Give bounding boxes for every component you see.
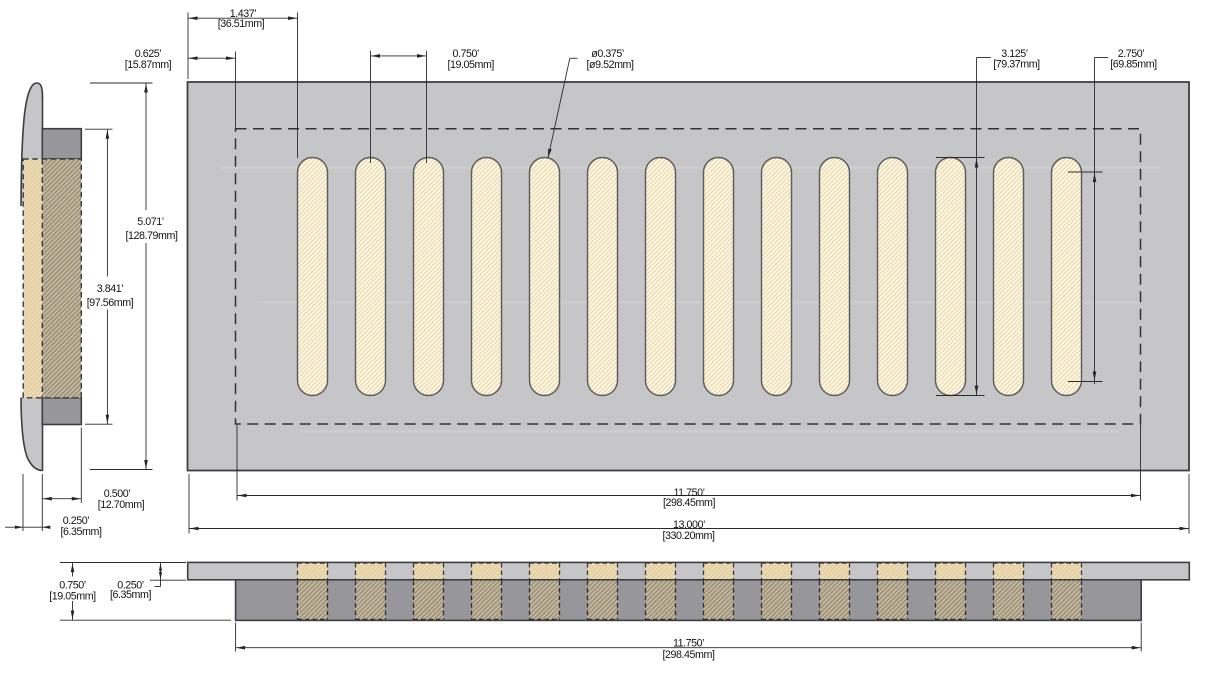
svg-text:[ø9.52mm]: [ø9.52mm]: [586, 59, 634, 71]
svg-text:3.841’: 3.841’: [97, 283, 123, 295]
svg-text:[12.70mm]: [12.70mm]: [98, 499, 145, 511]
svg-text:[19.05mm]: [19.05mm]: [49, 591, 96, 603]
svg-text:[6.35mm]: [6.35mm]: [61, 526, 102, 538]
svg-text:[19.05mm]: [19.05mm]: [448, 59, 495, 71]
svg-text:[15.87mm]: [15.87mm]: [125, 59, 172, 71]
svg-text:[128.79mm]: [128.79mm]: [126, 230, 178, 242]
svg-text:[69.85mm]: [69.85mm]: [1110, 58, 1157, 70]
svg-text:[330.20mm]: [330.20mm]: [663, 530, 715, 542]
svg-text:[298.45mm]: [298.45mm]: [663, 649, 715, 661]
svg-text:[298.45mm]: [298.45mm]: [663, 497, 715, 509]
svg-text:[79.37mm]: [79.37mm]: [993, 58, 1040, 70]
svg-text:5.071’: 5.071’: [137, 216, 163, 228]
svg-text:[97.56mm]: [97.56mm]: [87, 297, 134, 309]
svg-text:[36.51mm]: [36.51mm]: [218, 18, 265, 30]
svg-text:11.750’: 11.750’: [673, 637, 704, 649]
svg-text:[6.35mm]: [6.35mm]: [110, 589, 151, 601]
